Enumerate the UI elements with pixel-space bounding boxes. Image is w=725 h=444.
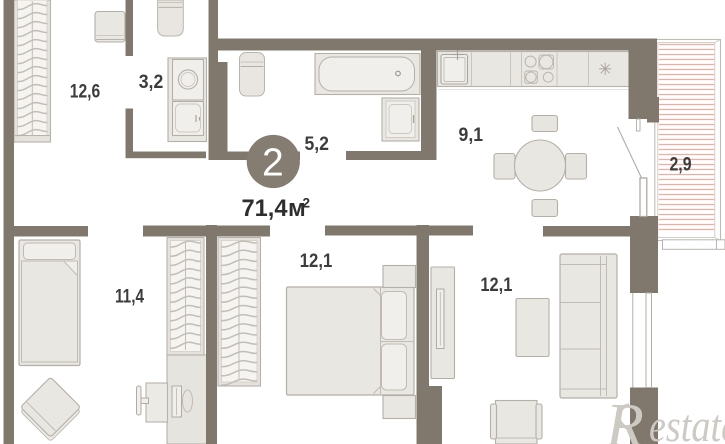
svg-text:12,6: 12,6 bbox=[70, 81, 101, 103]
svg-text:9,1: 9,1 bbox=[459, 124, 484, 146]
svg-text:11,4: 11,4 bbox=[115, 286, 144, 308]
svg-text:2: 2 bbox=[262, 142, 284, 185]
svg-text:71,4: 71,4 bbox=[242, 195, 289, 222]
svg-text:12,1: 12,1 bbox=[480, 274, 512, 296]
svg-text:5,2: 5,2 bbox=[304, 133, 329, 155]
svg-text:12,1: 12,1 bbox=[300, 250, 333, 272]
svg-text:2: 2 bbox=[303, 196, 311, 211]
svg-text:estate: estate bbox=[649, 400, 725, 444]
svg-text:R: R bbox=[605, 392, 644, 444]
svg-text:3,2: 3,2 bbox=[139, 71, 164, 93]
svg-text:2,9: 2,9 bbox=[670, 154, 692, 176]
